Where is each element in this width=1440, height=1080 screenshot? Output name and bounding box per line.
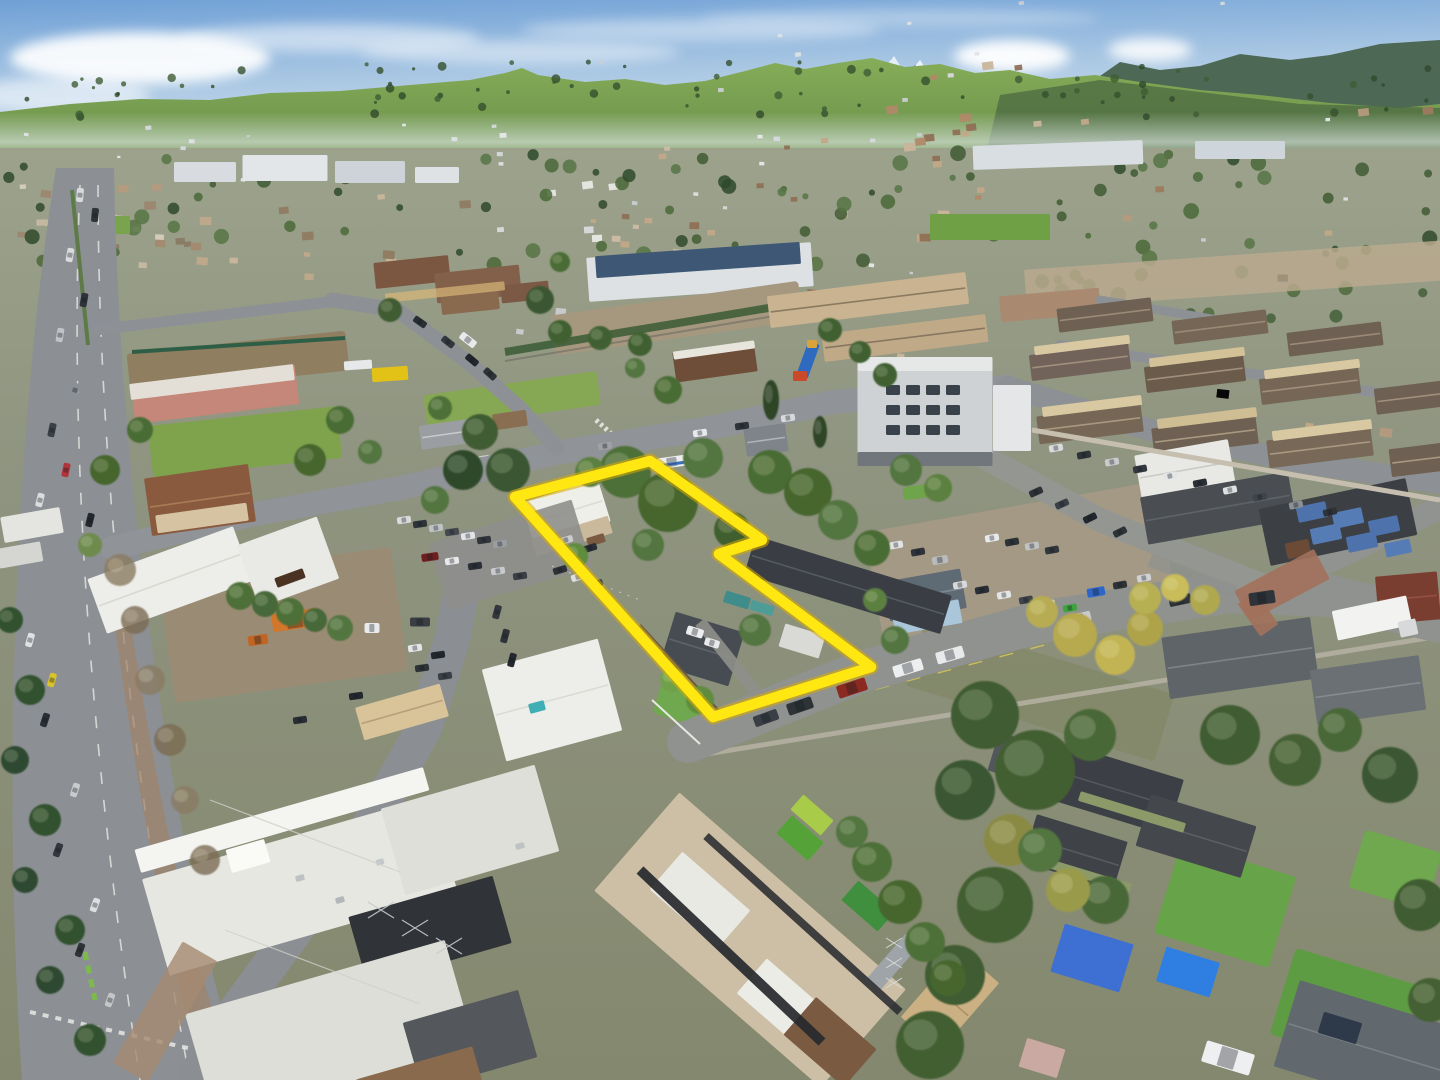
aerial-photo-listing (0, 0, 1440, 1080)
aerial-photo-canvas (0, 0, 1440, 1080)
